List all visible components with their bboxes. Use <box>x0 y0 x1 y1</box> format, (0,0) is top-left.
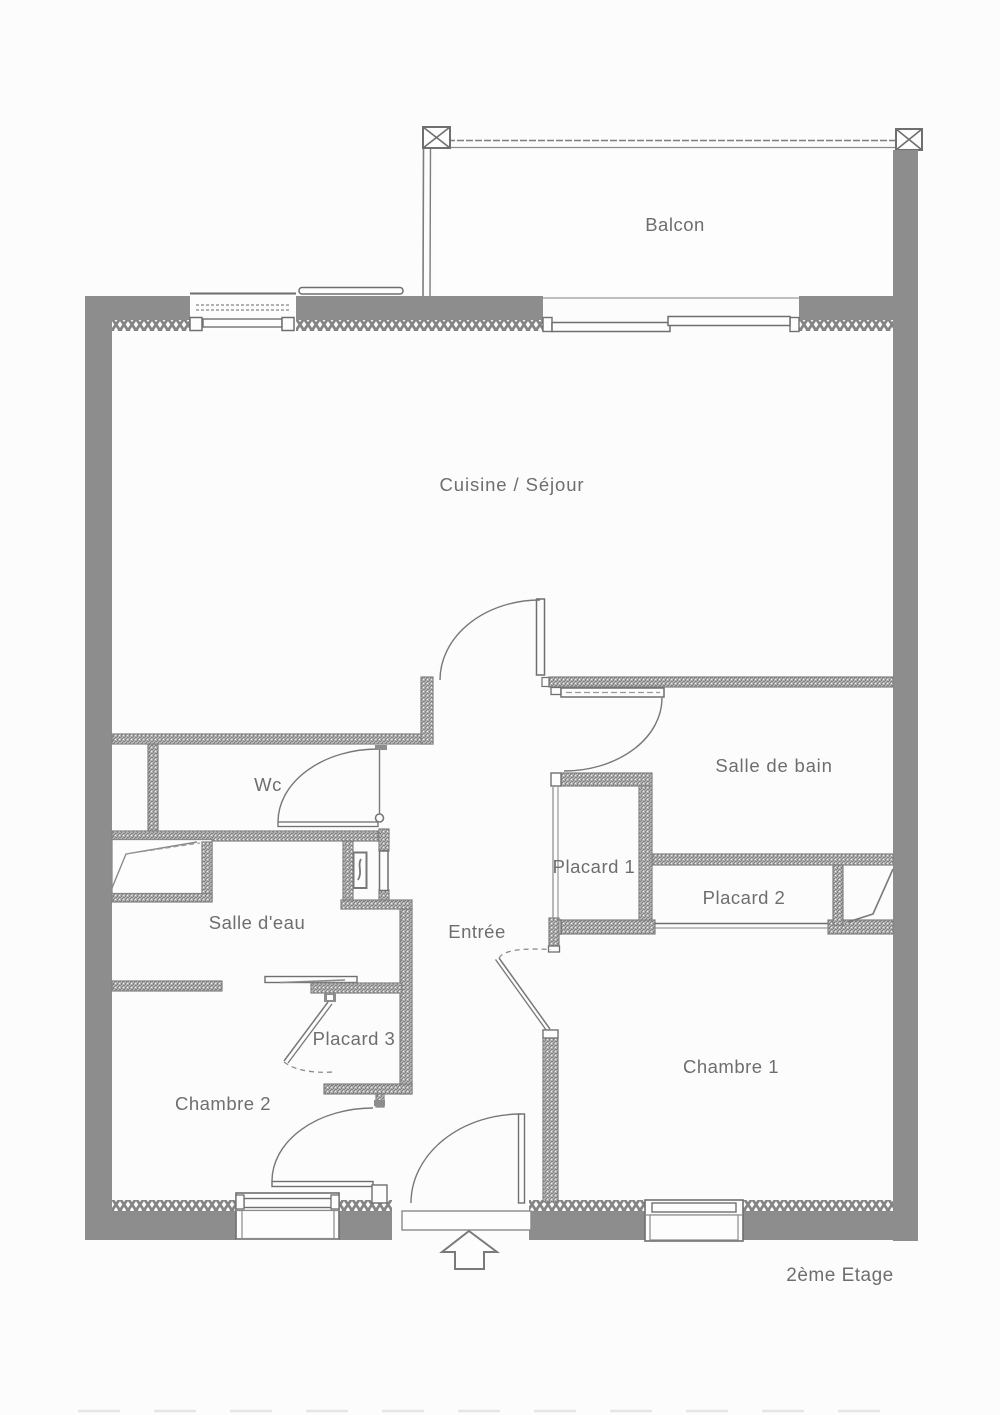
svg-text:Chambre 1: Chambre 1 <box>683 1056 779 1077</box>
svg-text:Placard 3: Placard 3 <box>313 1028 396 1049</box>
svg-text:Placard 1: Placard 1 <box>553 856 636 877</box>
svg-text:Placard 2: Placard 2 <box>703 887 786 908</box>
svg-text:Salle de bain: Salle de bain <box>715 755 832 776</box>
svg-text:2ème Etage: 2ème Etage <box>786 1265 893 1286</box>
svg-text:Cuisine / Séjour: Cuisine / Séjour <box>440 474 585 495</box>
svg-text:Wc: Wc <box>254 774 282 795</box>
svg-text:Balcon: Balcon <box>645 214 705 235</box>
svg-text:Entrée: Entrée <box>448 921 506 942</box>
svg-text:Chambre 2: Chambre 2 <box>175 1093 271 1114</box>
svg-text:Salle d'eau: Salle d'eau <box>209 912 305 933</box>
